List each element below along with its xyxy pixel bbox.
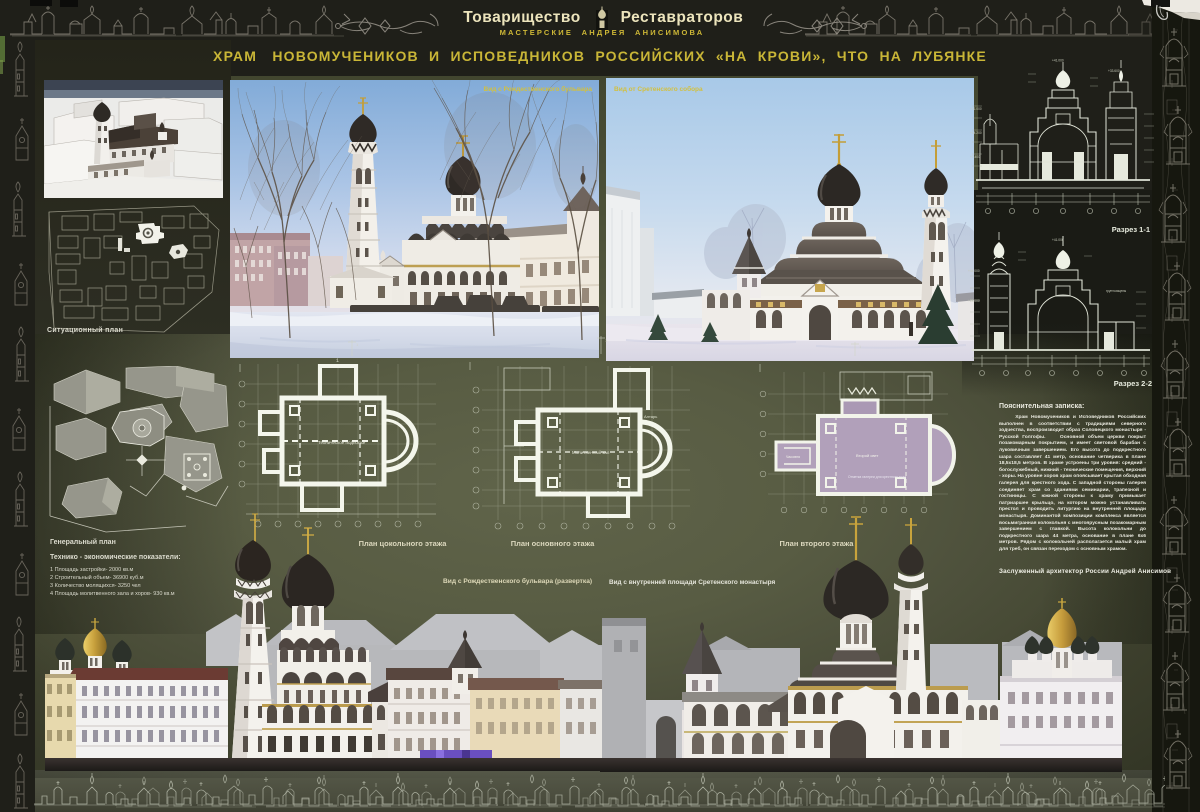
svg-text:1: 1 (356, 342, 359, 347)
svg-text:1: 1 (859, 344, 862, 349)
svg-text:1: 1 (605, 338, 608, 343)
